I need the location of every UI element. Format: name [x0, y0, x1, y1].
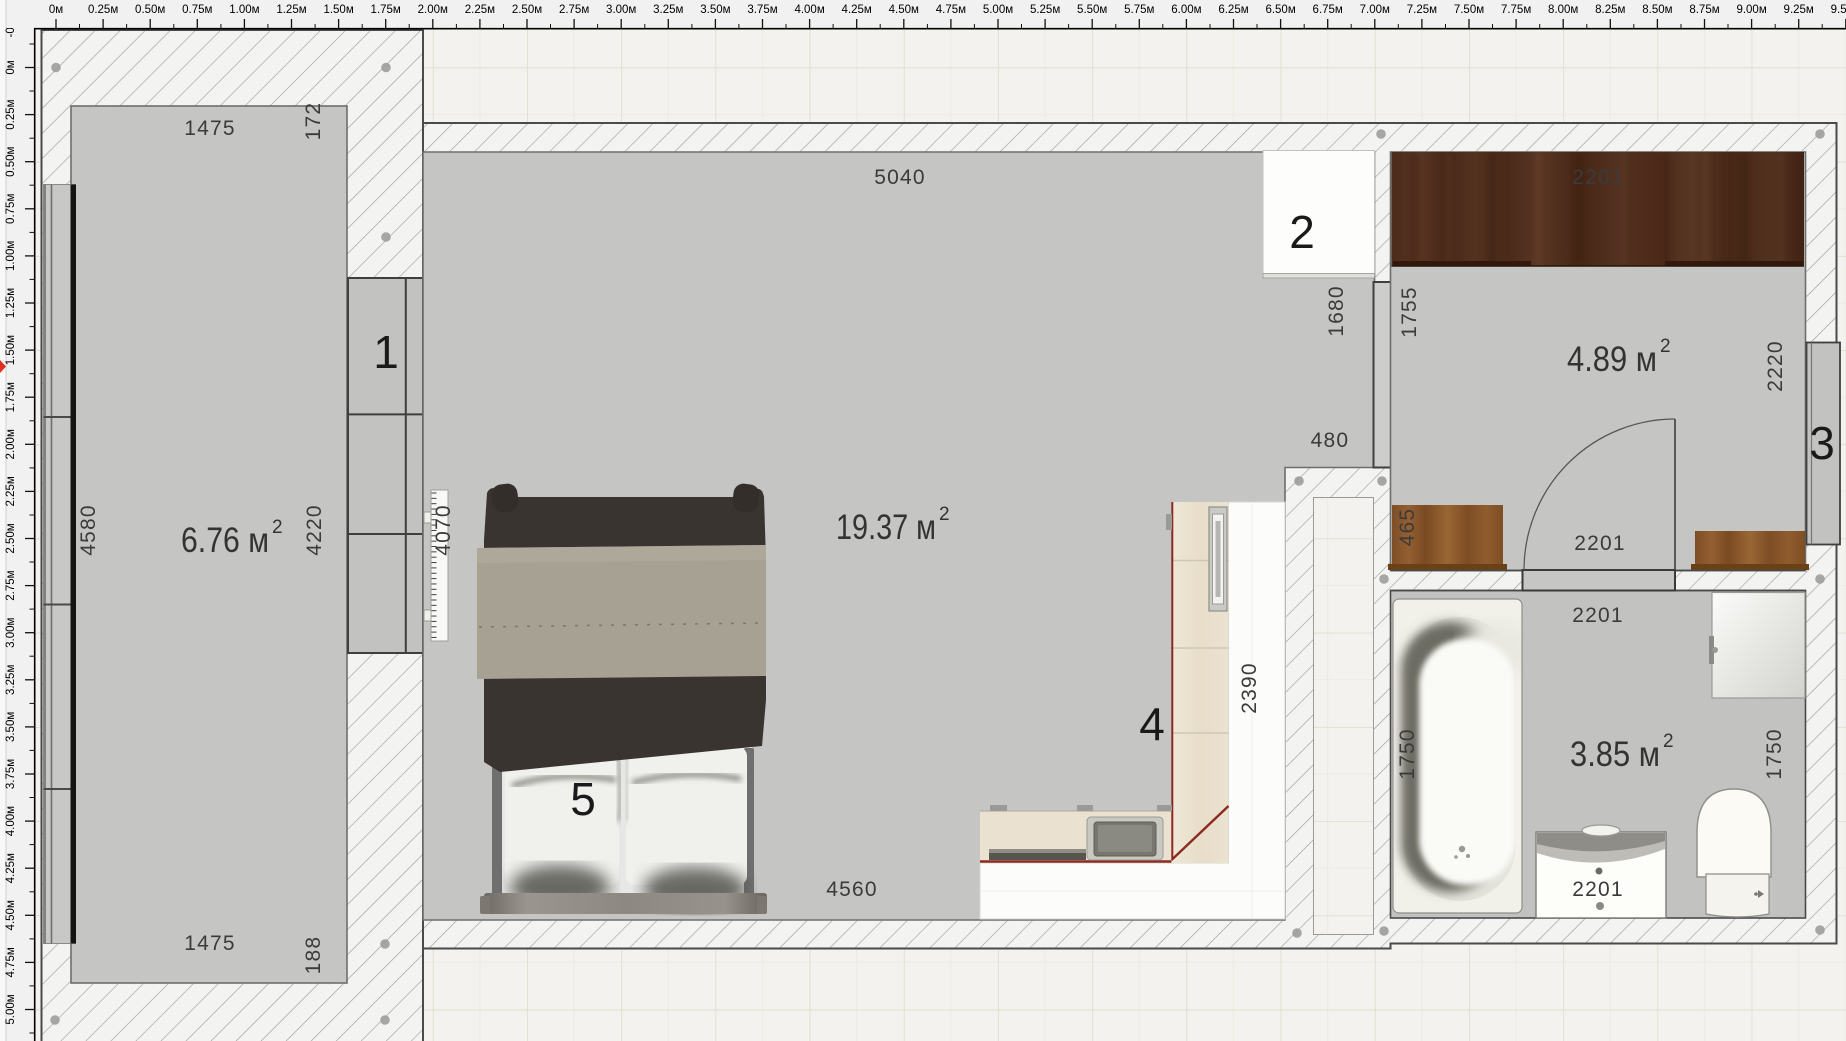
svg-text:7.75м: 7.75м [1501, 4, 1531, 16]
svg-text:2.50м: 2.50м [5, 523, 17, 553]
svg-text:1475: 1475 [184, 117, 236, 140]
svg-text:1755: 1755 [1398, 286, 1421, 338]
svg-text:0.25м: 0.25м [88, 4, 118, 16]
svg-text:0м: 0м [5, 60, 17, 74]
svg-text:2: 2 [939, 504, 950, 525]
svg-text:1.00м: 1.00м [229, 4, 259, 16]
svg-text:7.25м: 7.25м [1407, 4, 1437, 16]
svg-text:6.00м: 6.00м [1171, 4, 1201, 16]
svg-text:4.50м: 4.50м [889, 4, 919, 16]
svg-text:3.75м: 3.75м [747, 4, 777, 16]
svg-text:0м: 0м [49, 4, 63, 16]
svg-text:4560: 4560 [826, 878, 878, 901]
svg-text:4.25м: 4.25м [5, 853, 17, 883]
svg-text:4220: 4220 [303, 504, 326, 556]
svg-text:3: 3 [1809, 417, 1835, 469]
svg-text:4.00м: 4.00м [5, 806, 17, 836]
svg-text:480: 480 [1311, 429, 1350, 452]
svg-text:1.25м: 1.25м [276, 4, 306, 16]
svg-text:1.00м: 1.00м [5, 241, 17, 271]
svg-text:4.89 м: 4.89 м [1567, 340, 1657, 379]
svg-text:0.50м: 0.50м [5, 146, 17, 176]
svg-text:1.75м: 1.75м [5, 382, 17, 412]
svg-text:9.25м: 9.25м [1784, 4, 1814, 16]
svg-text:3.85 м: 3.85 м [1570, 735, 1660, 774]
svg-text:4.50м: 4.50м [5, 900, 17, 930]
svg-text:1.50м: 1.50м [323, 4, 353, 16]
svg-text:8.50м: 8.50м [1642, 4, 1672, 16]
svg-text:8.25м: 8.25м [1595, 4, 1625, 16]
svg-text:2.75м: 2.75м [559, 4, 589, 16]
svg-text:4.25м: 4.25м [842, 4, 872, 16]
svg-text:1.50м: 1.50м [5, 335, 17, 365]
svg-text:5.75м: 5.75м [1124, 4, 1154, 16]
svg-text:6.25м: 6.25м [1218, 4, 1248, 16]
svg-text:2220: 2220 [1764, 340, 1787, 392]
svg-text:5.50м: 5.50м [1077, 4, 1107, 16]
svg-text:3.25м: 3.25м [5, 665, 17, 695]
svg-text:4070: 4070 [432, 504, 455, 556]
svg-text:2.75м: 2.75м [5, 570, 17, 600]
svg-text:2201: 2201 [1572, 604, 1624, 627]
svg-text:9.50м: 9.50м [1831, 4, 1846, 16]
svg-text:2.25м: 2.25м [5, 476, 17, 506]
svg-text:4.75м: 4.75м [936, 4, 966, 16]
svg-text:5040: 5040 [874, 166, 926, 189]
svg-text:7.00м: 7.00м [1360, 4, 1390, 16]
svg-text:4: 4 [1139, 698, 1165, 750]
svg-text:2.25м: 2.25м [465, 4, 495, 16]
svg-text:3.00м: 3.00м [5, 617, 17, 647]
svg-text:1.25м: 1.25м [5, 288, 17, 318]
svg-text:0.25м: 0.25м [5, 99, 17, 129]
svg-text:2201: 2201 [1574, 532, 1626, 555]
svg-text:2: 2 [1660, 336, 1671, 357]
svg-text:2390: 2390 [1238, 662, 1261, 714]
svg-text:8.00м: 8.00м [1548, 4, 1578, 16]
svg-text:5.25м: 5.25м [1030, 4, 1060, 16]
svg-text:8.75м: 8.75м [1689, 4, 1719, 16]
svg-text:19.37 м: 19.37 м [836, 508, 936, 547]
svg-text:172: 172 [302, 102, 325, 141]
svg-text:2: 2 [1663, 731, 1674, 752]
svg-text:9.00м: 9.00м [1736, 4, 1766, 16]
svg-text:2201: 2201 [1572, 166, 1624, 189]
svg-text:2: 2 [1289, 206, 1315, 258]
svg-text:3.00м: 3.00м [606, 4, 636, 16]
svg-text:2.50м: 2.50м [512, 4, 542, 16]
svg-text:2.00м: 2.00м [418, 4, 448, 16]
svg-text:2201: 2201 [1572, 878, 1624, 901]
svg-text:0.50м: 0.50м [135, 4, 165, 16]
svg-text:6.50м: 6.50м [1265, 4, 1295, 16]
svg-text:4.75м: 4.75м [5, 947, 17, 977]
svg-text:1.75м: 1.75м [371, 4, 401, 16]
svg-text:0.75м: 0.75м [5, 194, 17, 224]
svg-text:7.50м: 7.50м [1454, 4, 1484, 16]
svg-text:5.00м: 5.00м [983, 4, 1013, 16]
svg-text:3.50м: 3.50м [700, 4, 730, 16]
svg-text:3.25м: 3.25м [653, 4, 683, 16]
svg-text:6.75м: 6.75м [1313, 4, 1343, 16]
svg-text:4580: 4580 [77, 504, 100, 556]
svg-text:1750: 1750 [1763, 728, 1786, 780]
svg-text:1: 1 [373, 326, 399, 378]
svg-text:2.00м: 2.00м [5, 429, 17, 459]
svg-text:188: 188 [302, 936, 325, 975]
svg-text:0.75м: 0.75м [182, 4, 212, 16]
svg-text:4.00м: 4.00м [794, 4, 824, 16]
svg-text:5.00м: 5.00м [5, 994, 17, 1024]
svg-text:1475: 1475 [184, 932, 236, 955]
svg-text:5: 5 [570, 773, 596, 825]
svg-text:1680: 1680 [1325, 285, 1348, 337]
svg-text:3.75м: 3.75м [5, 759, 17, 789]
svg-text:3.50м: 3.50м [5, 712, 17, 742]
svg-text:465: 465 [1396, 508, 1419, 547]
svg-text:6.76 м: 6.76 м [181, 521, 269, 560]
svg-text:1750: 1750 [1396, 728, 1419, 780]
svg-text:2: 2 [272, 517, 283, 538]
